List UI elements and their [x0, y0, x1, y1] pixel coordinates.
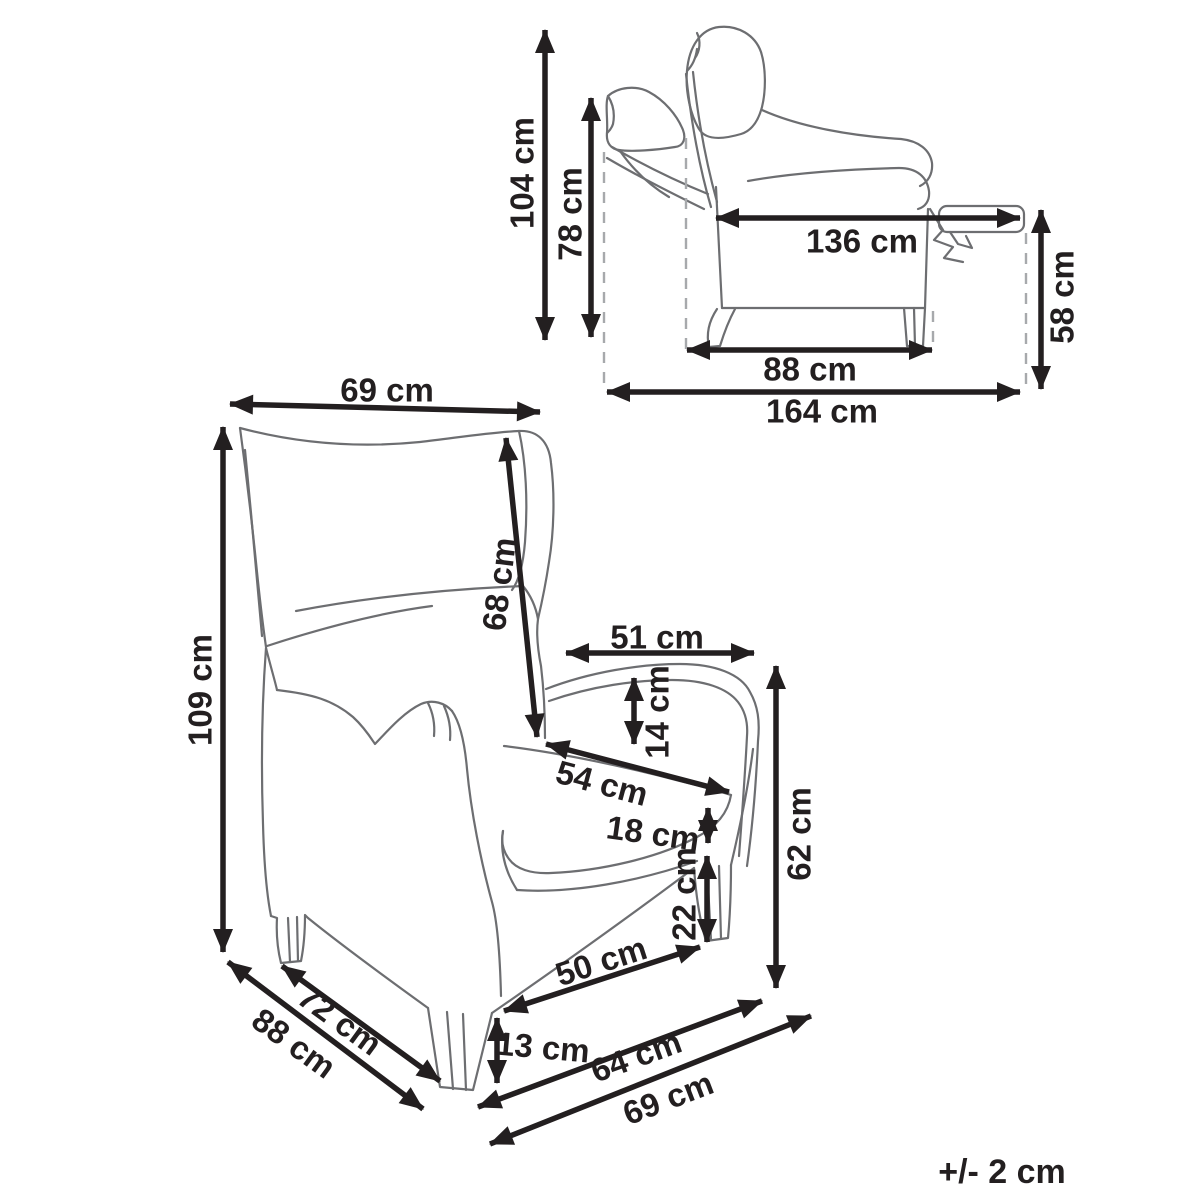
recliner-dimensions-diagram: 104 cm 78 cm 136 cm 58 cm 88 cm 164 cm: [0, 0, 1200, 1200]
dim-front-total-height: 109 cm: [182, 427, 223, 952]
dim-label-side-footrest-height: 58 cm: [1044, 250, 1081, 344]
front-view-diagram: 69 cm 109 cm 68 cm 51 cm 14 cm 54 cm 18 …: [182, 372, 818, 1144]
dim-front-armrest-length: 51 cm: [566, 619, 754, 656]
dim-label-side-total-reclined-depth: 164 cm: [766, 393, 878, 430]
dim-label-front-backrest-width: 69 cm: [340, 372, 434, 409]
side-view-chair-drawing: [607, 27, 1024, 347]
dim-front-backrest-width: 69 cm: [230, 372, 540, 412]
tolerance-note: +/- 2 cm: [938, 1153, 1066, 1191]
dim-side-total-reclined-depth: 164 cm: [607, 392, 1020, 430]
dim-label-front-armrest-thickness: 14 cm: [639, 665, 676, 759]
dim-side-footrest-height: 58 cm: [1041, 210, 1081, 389]
side-view-diagram: 104 cm 78 cm 136 cm 58 cm 88 cm 164 cm: [504, 27, 1081, 430]
dim-label-front-leg-height: 13 cm: [495, 1025, 591, 1070]
dim-label-front-armrest-height: 62 cm: [781, 787, 818, 881]
dim-front-under-seat-clearance: 22 cm: [666, 847, 707, 942]
dimension-diagram-page: 104 cm 78 cm 136 cm 58 cm 88 cm 164 cm: [0, 0, 1200, 1200]
dim-label-side-backrest-height: 78 cm: [552, 167, 589, 261]
dim-side-reclined-length: 136 cm: [716, 218, 1020, 260]
dim-label-front-seat-front-width: 50 cm: [551, 929, 651, 993]
dim-label-side-base-depth: 88 cm: [763, 351, 857, 388]
dim-label-side-reclined-length: 136 cm: [806, 223, 918, 260]
dim-side-backrest-height: 78 cm: [552, 98, 591, 337]
dim-front-backrest-length: 68 cm: [475, 438, 537, 737]
dim-front-armrest-height: 62 cm: [776, 666, 818, 988]
dim-side-base-depth: 88 cm: [687, 350, 932, 388]
dim-label-front-backrest-length: 68 cm: [475, 535, 523, 632]
dim-side-total-height: 104 cm: [504, 30, 545, 340]
dim-label-front-under-seat-clearance: 22 cm: [666, 847, 703, 941]
dim-front-armrest-thickness: 14 cm: [634, 665, 676, 759]
dim-label-front-armrest-length: 51 cm: [610, 619, 704, 656]
dim-label-front-total-height: 109 cm: [182, 634, 219, 746]
dim-label-side-total-height: 104 cm: [504, 117, 541, 229]
dim-front-leg-height: 13 cm: [495, 1018, 591, 1083]
tolerance-note-label: +/- 2 cm: [938, 1153, 1066, 1191]
dim-front-seat-width: 54 cm: [546, 744, 729, 813]
